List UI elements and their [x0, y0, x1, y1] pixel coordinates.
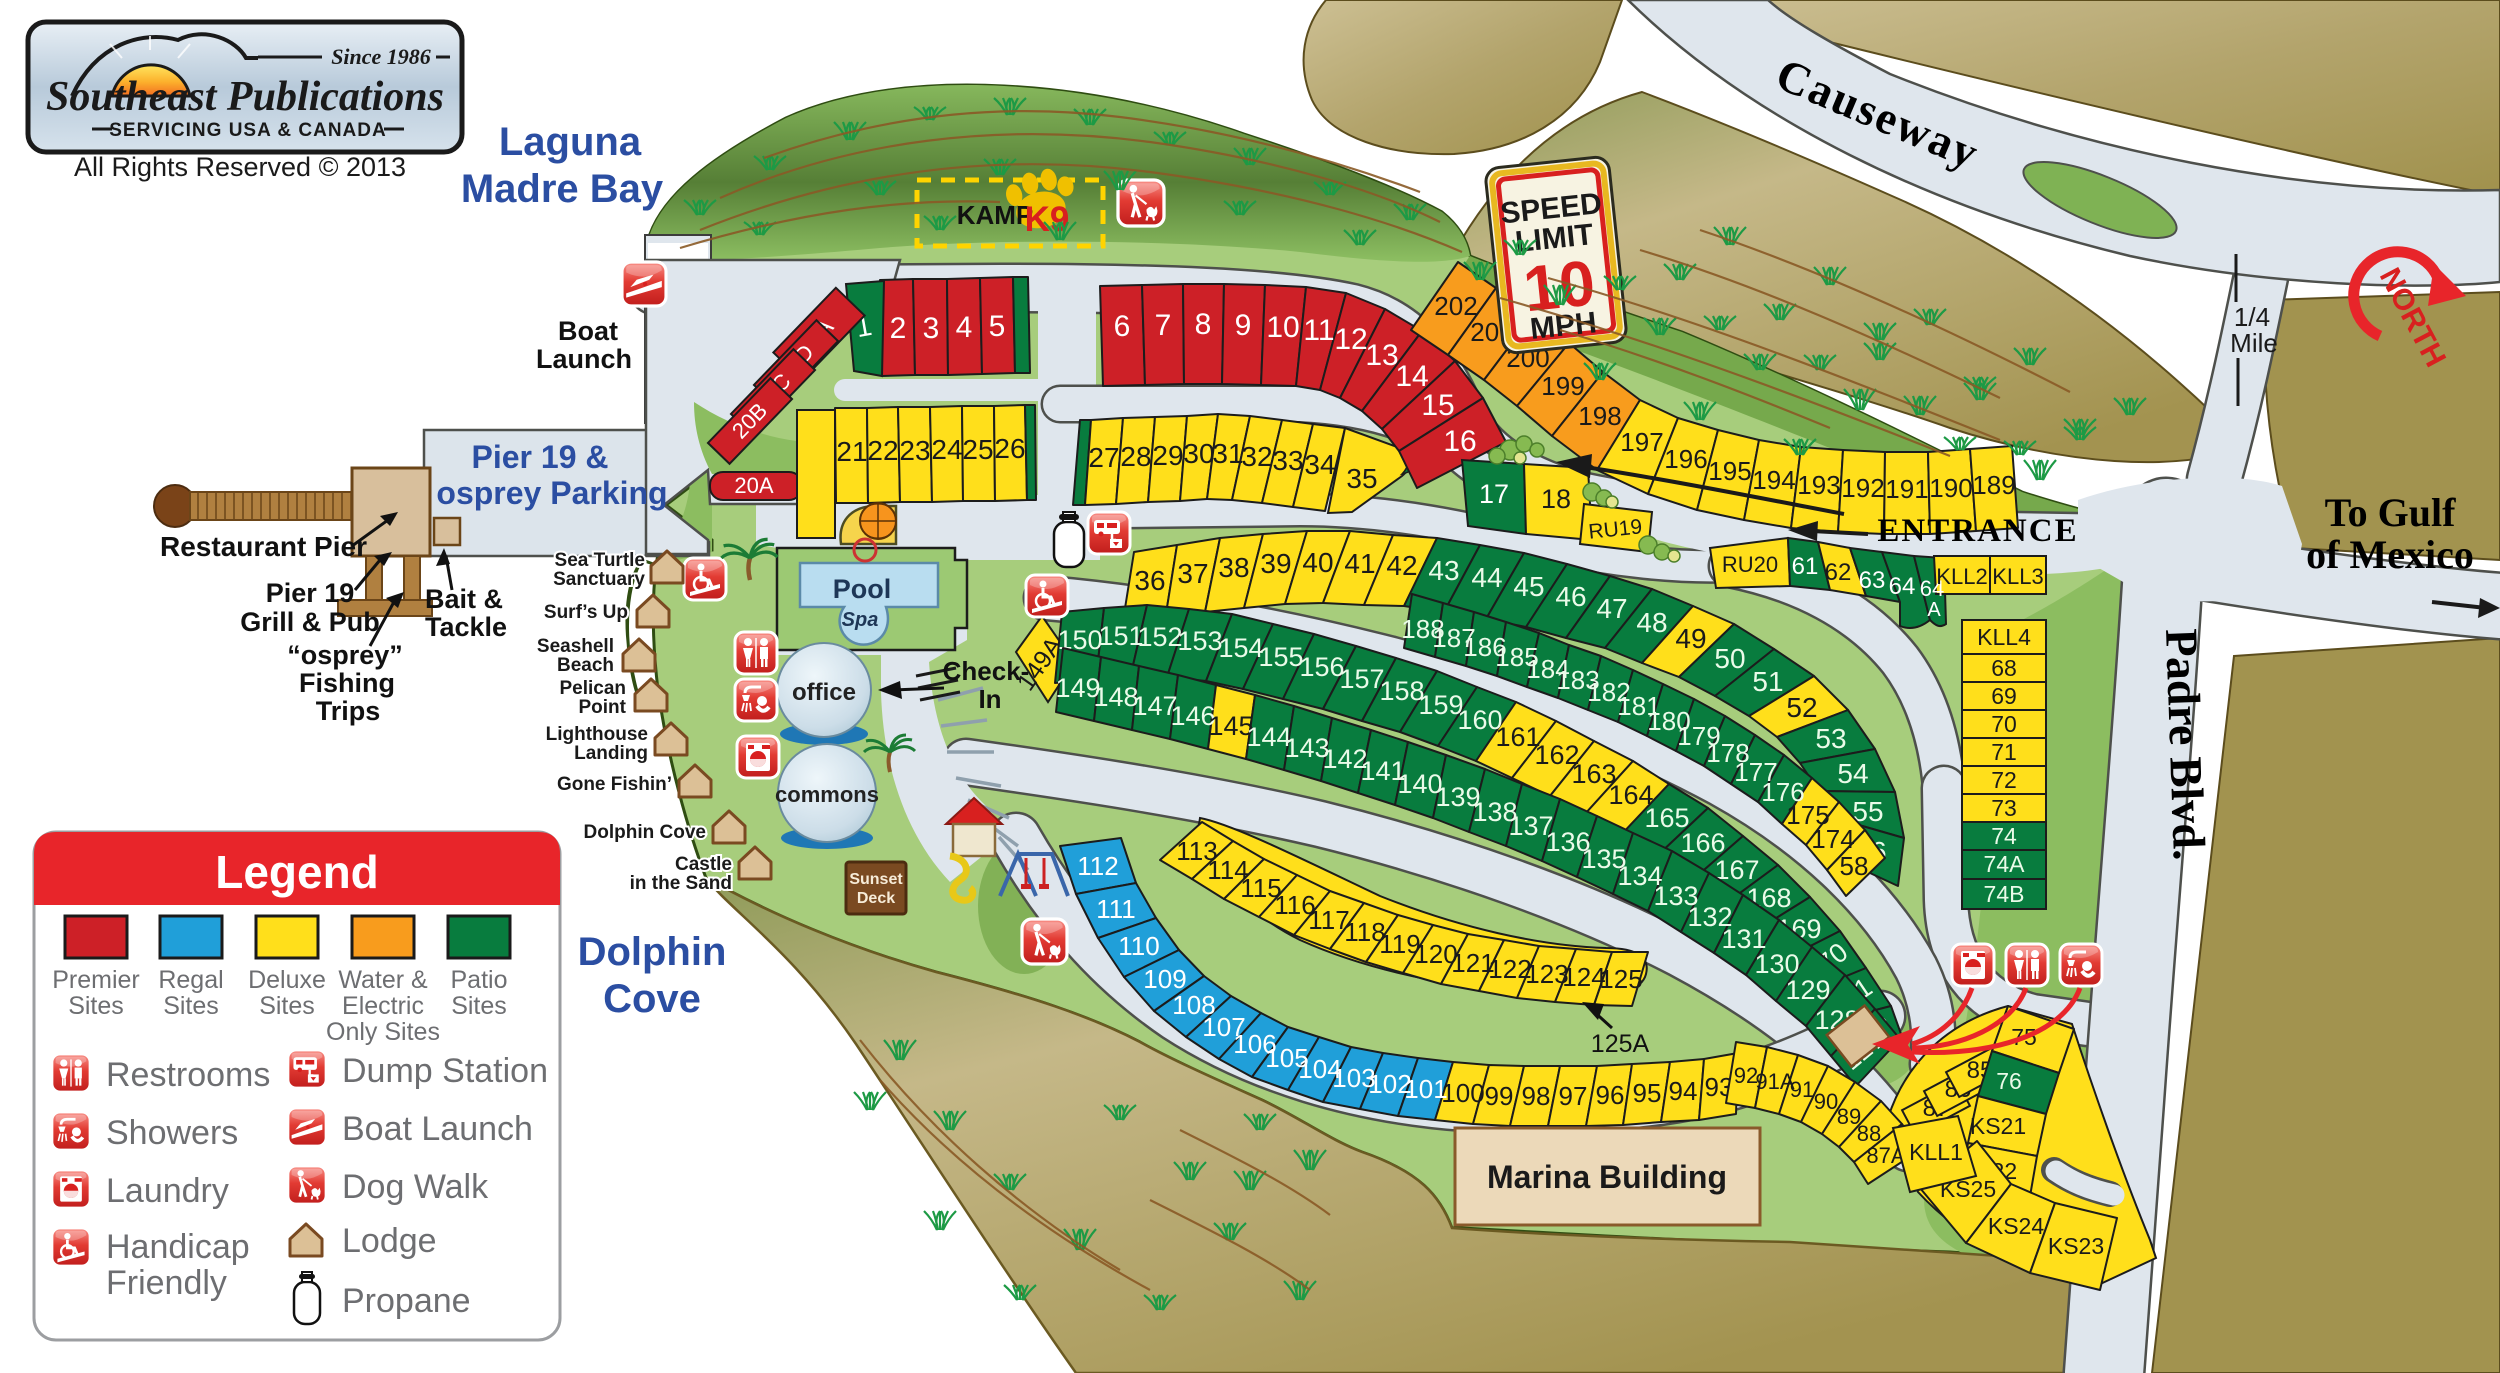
svg-text:47: 47: [1596, 593, 1627, 624]
svg-text:156: 156: [1299, 652, 1344, 682]
svg-text:191: 191: [1885, 474, 1928, 504]
svg-text:36: 36: [1134, 565, 1165, 596]
svg-text:Sites: Sites: [163, 992, 219, 1020]
svg-text:Grill & Pub: Grill & Pub: [240, 607, 380, 637]
svg-text:Restrooms: Restrooms: [106, 1056, 270, 1094]
svg-text:Lodge: Lodge: [342, 1222, 437, 1260]
svg-text:98: 98: [1522, 1081, 1551, 1111]
svg-text:Handicap: Handicap: [106, 1228, 250, 1266]
svg-text:49: 49: [1675, 623, 1706, 654]
svg-text:112: 112: [1077, 851, 1118, 881]
svg-text:125A: 125A: [1591, 1030, 1650, 1058]
svg-text:Only Sites: Only Sites: [326, 1018, 440, 1046]
svg-text:In: In: [978, 684, 1001, 714]
svg-text:3: 3: [923, 312, 940, 345]
svg-text:Pool: Pool: [833, 574, 892, 604]
svg-text:Laguna: Laguna: [499, 120, 642, 164]
svg-text:Boat: Boat: [558, 316, 618, 346]
svg-text:35: 35: [1346, 463, 1377, 494]
svg-text:commons: commons: [775, 782, 879, 807]
svg-text:69: 69: [1991, 683, 2017, 709]
svg-text:Legend: Legend: [215, 846, 379, 898]
svg-text:Trips: Trips: [316, 696, 381, 726]
svg-text:46: 46: [1555, 581, 1586, 612]
svg-text:Cove: Cove: [603, 977, 701, 1021]
svg-text:To Gulf: To Gulf: [2325, 490, 2456, 535]
svg-text:154: 154: [1218, 633, 1263, 663]
svg-text:Padre Blvd.: Padre Blvd.: [2156, 628, 2215, 861]
svg-text:Boat Launch: Boat Launch: [342, 1110, 533, 1148]
svg-text:72: 72: [1991, 767, 2017, 793]
svg-text:Pelican: Pelican: [559, 678, 626, 699]
svg-text:Since 1986: Since 1986: [331, 44, 431, 69]
svg-text:2: 2: [890, 312, 907, 345]
svg-text:17: 17: [1479, 479, 1509, 509]
svg-text:KLL4: KLL4: [1977, 624, 2031, 650]
svg-text:27: 27: [1088, 442, 1119, 473]
svg-text:Bait &: Bait &: [425, 584, 503, 614]
svg-text:in the Sand: in the Sand: [630, 873, 732, 894]
svg-text:Lighthouse: Lighthouse: [546, 724, 648, 745]
svg-text:Electric: Electric: [342, 992, 424, 1020]
svg-text:ENTRANCE: ENTRANCE: [1877, 513, 2078, 549]
svg-text:Deck: Deck: [857, 890, 895, 907]
svg-text:111: 111: [1096, 894, 1136, 924]
svg-text:Patio: Patio: [451, 966, 508, 994]
svg-text:30: 30: [1183, 438, 1214, 469]
svg-text:Dump Station: Dump Station: [342, 1052, 548, 1090]
svg-text:Surf’s Up: Surf’s Up: [544, 602, 628, 623]
svg-text:58: 58: [1840, 851, 1869, 881]
svg-text:94: 94: [1669, 1076, 1698, 1106]
svg-text:110: 110: [1118, 931, 1159, 961]
svg-text:192: 192: [1841, 473, 1884, 503]
svg-text:23: 23: [899, 435, 930, 466]
svg-text:26: 26: [994, 433, 1025, 464]
svg-text:125: 125: [1599, 964, 1642, 994]
svg-text:38: 38: [1218, 552, 1249, 583]
svg-text:74B: 74B: [1984, 881, 2025, 907]
svg-text:KLL2: KLL2: [1936, 564, 1987, 589]
svg-text:4: 4: [956, 311, 973, 344]
svg-text:Marina Building: Marina Building: [1487, 1159, 1727, 1195]
svg-text:64: 64: [1889, 573, 1916, 600]
svg-text:Southeast Publications: Southeast Publications: [46, 74, 444, 120]
svg-text:11: 11: [1303, 314, 1334, 347]
svg-text:Mile: Mile: [2230, 328, 2278, 358]
svg-text:Castle: Castle: [675, 854, 732, 875]
svg-text:Tackle: Tackle: [425, 612, 507, 642]
svg-text:97: 97: [1559, 1081, 1588, 1111]
svg-text:15: 15: [1421, 389, 1454, 422]
svg-text:5: 5: [989, 310, 1006, 343]
svg-text:Launch: Launch: [536, 344, 632, 374]
svg-text:37: 37: [1177, 558, 1208, 589]
svg-text:68: 68: [1991, 655, 2017, 681]
svg-text:Spa: Spa: [842, 609, 879, 631]
svg-text:76: 76: [1996, 1068, 2022, 1094]
svg-text:193: 193: [1797, 470, 1840, 500]
svg-text:Check-: Check-: [943, 656, 1030, 686]
svg-text:Fishing: Fishing: [299, 668, 395, 698]
svg-text:KLL3: KLL3: [1992, 564, 2043, 589]
svg-text:9: 9: [1235, 309, 1252, 342]
svg-text:31: 31: [1212, 438, 1243, 469]
svg-text:25: 25: [962, 434, 993, 465]
svg-text:8: 8: [1195, 308, 1212, 341]
svg-text:194: 194: [1752, 465, 1795, 495]
svg-text:Point: Point: [579, 697, 627, 718]
svg-text:197: 197: [1620, 427, 1663, 457]
svg-text:Sanctuary: Sanctuary: [553, 569, 645, 590]
svg-text:Sites: Sites: [259, 992, 315, 1020]
svg-text:Sea Turtle: Sea Turtle: [555, 550, 645, 571]
svg-text:70: 70: [1991, 711, 2017, 737]
svg-text:Deluxe: Deluxe: [248, 966, 326, 994]
svg-text:10: 10: [1266, 311, 1299, 344]
svg-text:43: 43: [1428, 555, 1459, 586]
svg-text:KS21: KS21: [1970, 1113, 2026, 1139]
svg-text:Beach: Beach: [557, 655, 614, 676]
svg-text:29: 29: [1152, 440, 1183, 471]
svg-text:53: 53: [1815, 723, 1846, 754]
svg-text:73: 73: [1991, 795, 2017, 821]
svg-text:Propane: Propane: [342, 1282, 471, 1320]
svg-text:Dolphin Cove: Dolphin Cove: [584, 822, 706, 843]
svg-text:Sites: Sites: [68, 992, 124, 1020]
svg-text:71: 71: [1991, 739, 2017, 765]
svg-text:osprey Parking: osprey Parking: [436, 475, 667, 511]
svg-text:Pier 19 &: Pier 19 &: [472, 439, 609, 475]
svg-text:50: 50: [1714, 643, 1745, 674]
svg-text:40: 40: [1302, 547, 1333, 578]
svg-text:Laundry: Laundry: [106, 1172, 229, 1210]
svg-text:SERVICING USA & CANADA: SERVICING USA & CANADA: [109, 120, 386, 141]
svg-text:KS23: KS23: [2048, 1233, 2104, 1259]
svg-text:Friendly: Friendly: [106, 1264, 227, 1302]
svg-text:Seashell: Seashell: [537, 636, 614, 657]
svg-text:Gone Fishin’: Gone Fishin’: [557, 774, 672, 795]
svg-text:99: 99: [1485, 1081, 1514, 1111]
svg-text:Sunset: Sunset: [849, 871, 903, 888]
svg-text:21: 21: [836, 436, 867, 467]
svg-text:Madre Bay: Madre Bay: [461, 167, 664, 211]
svg-text:198: 198: [1578, 401, 1621, 431]
svg-text:Pier 19: Pier 19: [266, 578, 355, 608]
svg-text:63: 63: [1859, 567, 1886, 594]
svg-text:90: 90: [1814, 1089, 1838, 1114]
svg-text:96: 96: [1596, 1080, 1625, 1110]
svg-text:174: 174: [1811, 824, 1854, 854]
svg-text:Dog Walk: Dog Walk: [342, 1168, 489, 1206]
svg-text:20A: 20A: [734, 473, 773, 498]
svg-text:28: 28: [1120, 441, 1151, 472]
svg-text:195: 195: [1708, 456, 1751, 486]
svg-text:KLL1: KLL1: [1909, 1139, 1963, 1165]
svg-text:91: 91: [1790, 1077, 1814, 1102]
svg-text:Sites: Sites: [451, 992, 507, 1020]
svg-text:153: 153: [1177, 626, 1222, 656]
svg-text:A: A: [1927, 599, 1941, 621]
svg-text:74: 74: [1991, 823, 2017, 849]
svg-text:32: 32: [1241, 441, 1272, 472]
svg-text:41: 41: [1344, 548, 1375, 579]
svg-text:24: 24: [931, 434, 962, 465]
svg-text:52: 52: [1786, 692, 1817, 723]
svg-text:155: 155: [1258, 642, 1303, 672]
svg-text:RU20: RU20: [1722, 552, 1778, 577]
svg-text:33: 33: [1272, 445, 1303, 476]
svg-text:of Mexico: of Mexico: [2306, 532, 2474, 577]
svg-text:12: 12: [1334, 323, 1367, 356]
svg-text:“osprey”: “osprey”: [287, 640, 403, 670]
svg-text:157: 157: [1339, 664, 1384, 694]
svg-text:18: 18: [1541, 484, 1571, 514]
svg-text:54: 54: [1837, 758, 1868, 789]
svg-text:7: 7: [1155, 309, 1172, 342]
svg-text:196: 196: [1664, 444, 1707, 474]
svg-text:48: 48: [1636, 607, 1667, 638]
svg-text:Premier: Premier: [52, 966, 140, 994]
svg-text:44: 44: [1471, 562, 1502, 593]
svg-text:KAMP: KAMP: [957, 200, 1034, 230]
svg-text:All Rights Reserved © 2013: All Rights Reserved © 2013: [74, 152, 406, 182]
svg-text:61: 61: [1792, 553, 1819, 580]
svg-text:74A: 74A: [1984, 851, 2026, 877]
svg-text:6: 6: [1114, 310, 1131, 343]
svg-text:Regal: Regal: [158, 966, 223, 994]
svg-text:Showers: Showers: [106, 1114, 238, 1152]
svg-text:199: 199: [1541, 371, 1584, 401]
svg-text:190: 190: [1929, 473, 1972, 503]
svg-text:62: 62: [1825, 559, 1852, 586]
svg-text:39: 39: [1260, 548, 1291, 579]
svg-text:office: office: [792, 679, 856, 706]
svg-text:22: 22: [867, 435, 898, 466]
svg-text:189: 189: [1972, 470, 2015, 500]
svg-text:95: 95: [1633, 1078, 1662, 1108]
svg-text:42: 42: [1386, 550, 1417, 581]
svg-text:100: 100: [1441, 1078, 1484, 1108]
svg-text:MPH: MPH: [1529, 306, 1599, 346]
svg-text:45: 45: [1513, 571, 1544, 602]
svg-text:34: 34: [1304, 449, 1335, 480]
svg-text:16: 16: [1443, 425, 1476, 458]
svg-text:KS24: KS24: [1988, 1213, 2044, 1239]
svg-text:152: 152: [1137, 622, 1182, 652]
svg-text:166: 166: [1680, 828, 1725, 858]
svg-text:129: 129: [1785, 975, 1830, 1005]
svg-text:51: 51: [1752, 666, 1783, 697]
svg-text:Water &: Water &: [338, 966, 428, 994]
svg-text:Dolphin: Dolphin: [578, 930, 727, 974]
svg-text:13: 13: [1365, 339, 1398, 372]
svg-text:Restaurant Pier: Restaurant Pier: [160, 531, 367, 562]
svg-text:Landing: Landing: [574, 743, 648, 764]
